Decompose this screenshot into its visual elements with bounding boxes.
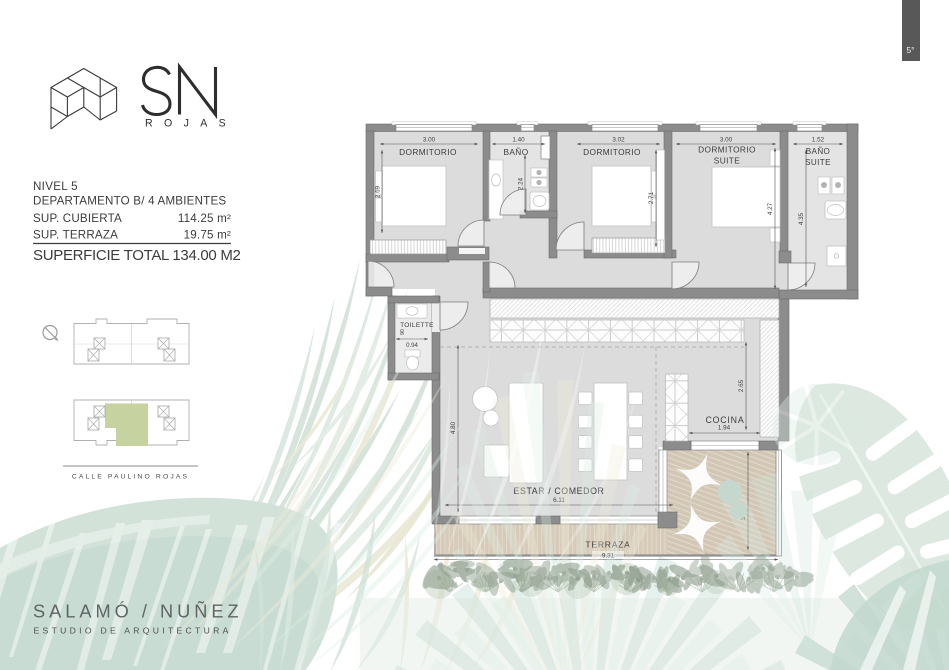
svg-text:TOILETTE: TOILETTE xyxy=(400,322,434,329)
svg-text:4.27: 4.27 xyxy=(767,202,774,215)
svg-text:DORMITORIO: DORMITORIO xyxy=(399,147,457,157)
svg-text:19.75 m²: 19.75 m² xyxy=(184,229,231,242)
svg-text:5°: 5° xyxy=(906,45,914,55)
svg-text:R O J A S: R O J A S xyxy=(145,118,230,130)
svg-text:TERRAZA: TERRAZA xyxy=(585,540,630,550)
svg-text:SUP. TERRAZA: SUP. TERRAZA xyxy=(33,229,118,242)
svg-text:1.40: 1.40 xyxy=(512,137,525,144)
svg-text:4.35: 4.35 xyxy=(798,212,805,225)
svg-text:BAÑO: BAÑO xyxy=(503,147,528,157)
svg-text:3.02: 3.02 xyxy=(612,137,625,144)
svg-text:DEPARTAMENTO B/ 4 AMBIENTES: DEPARTAMENTO B/ 4 AMBIENTES xyxy=(33,195,226,208)
svg-text:3.00: 3.00 xyxy=(720,137,733,144)
svg-text:90: 90 xyxy=(400,329,406,335)
svg-text:2.71: 2.71 xyxy=(648,191,655,204)
svg-text:BAÑO: BAÑO xyxy=(806,147,831,156)
svg-text:1.52: 1.52 xyxy=(812,137,825,144)
svg-text:ESTUDIO DE ARQUITECTURA: ESTUDIO DE ARQUITECTURA xyxy=(34,626,232,636)
svg-text:COCINA: COCINA xyxy=(705,415,744,425)
svg-text:1.94: 1.94 xyxy=(718,425,731,432)
svg-text:DORMITORIO: DORMITORIO xyxy=(698,145,756,155)
svg-text:SUPERFICIE TOTAL 134.00 M2: SUPERFICIE TOTAL 134.00 M2 xyxy=(33,247,241,264)
svg-text:DORMITORIO: DORMITORIO xyxy=(583,147,641,157)
svg-text:2.24: 2.24 xyxy=(518,177,525,190)
svg-text:SUITE: SUITE xyxy=(805,158,831,167)
svg-text:SUITE: SUITE xyxy=(714,156,740,166)
svg-text:CALLE PAULINO ROJAS: CALLE PAULINO ROJAS xyxy=(72,474,189,481)
svg-text:SALAMÓ / NUÑEZ: SALAMÓ / NUÑEZ xyxy=(33,601,243,622)
svg-text:2.69: 2.69 xyxy=(375,185,382,198)
svg-text:114.25 m²: 114.25 m² xyxy=(178,212,231,225)
svg-text:NIVEL 5: NIVEL 5 xyxy=(33,180,78,193)
svg-text:2.65: 2.65 xyxy=(738,379,745,392)
svg-text:SUP. CUBIERTA: SUP. CUBIERTA xyxy=(33,212,122,225)
svg-text:3.00: 3.00 xyxy=(423,137,436,144)
